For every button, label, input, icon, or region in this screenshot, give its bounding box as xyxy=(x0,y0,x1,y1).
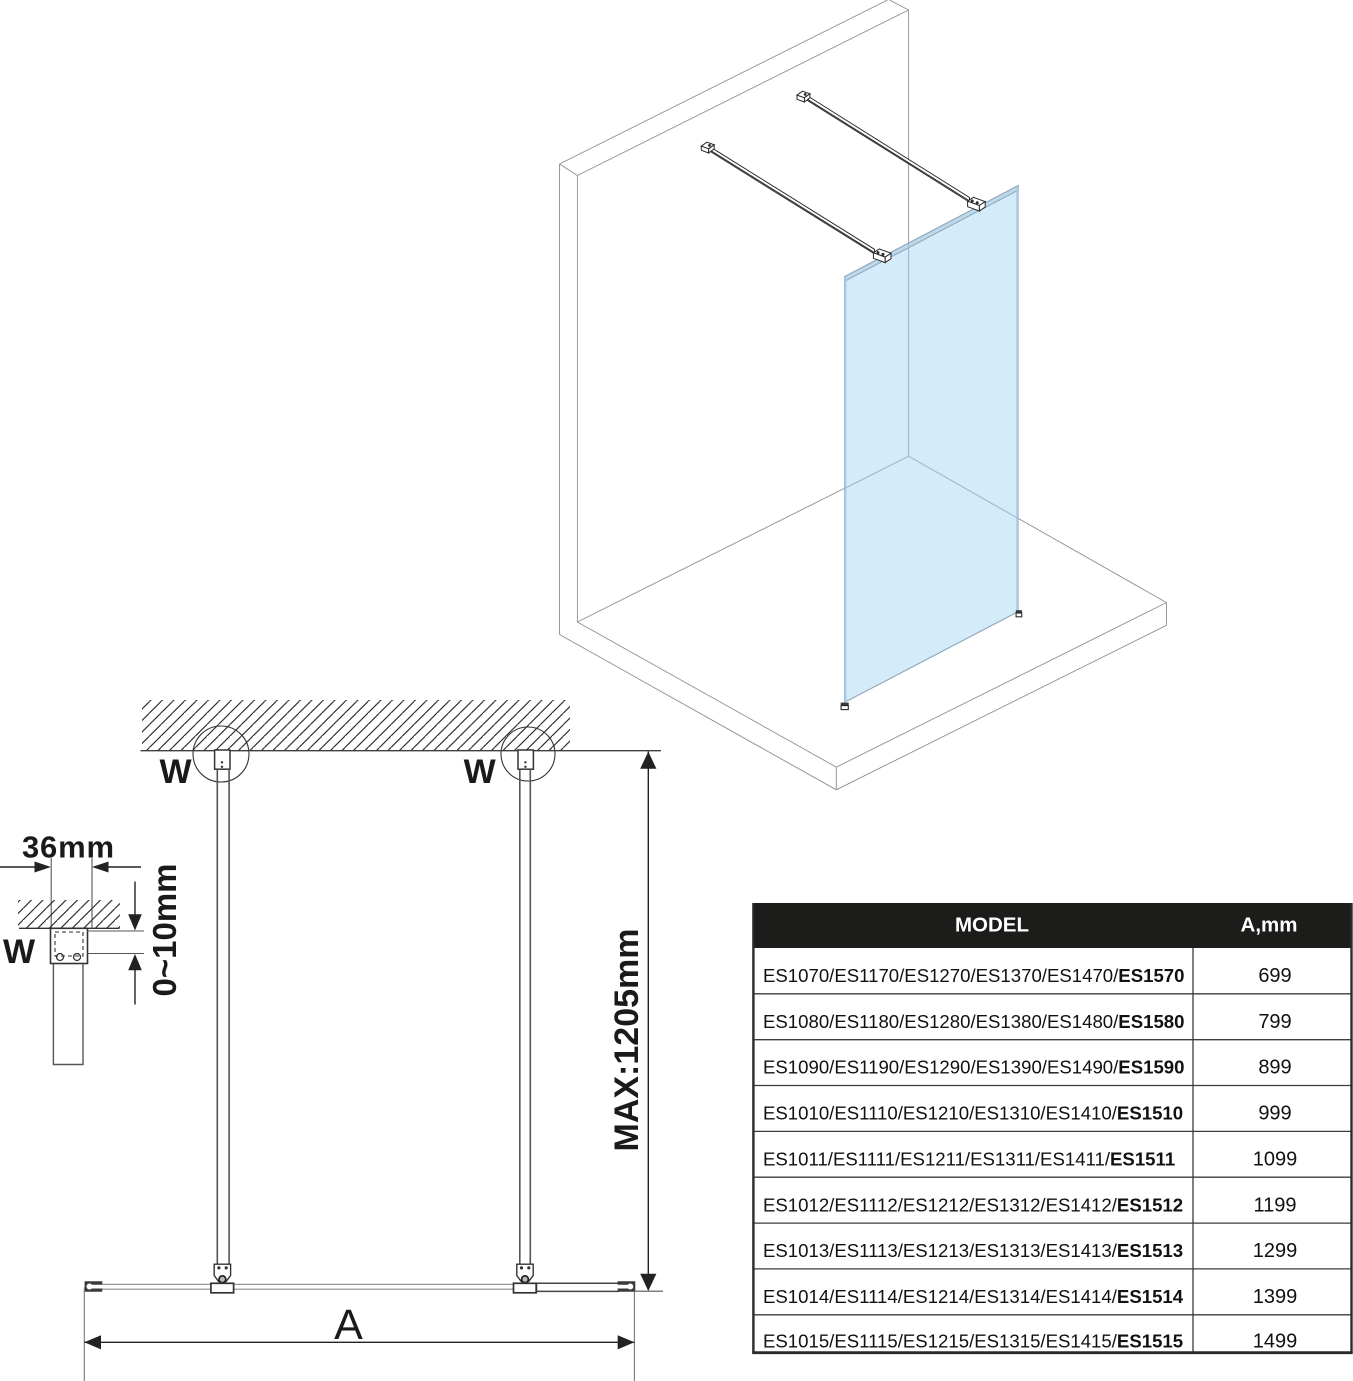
svg-text:ES1090/ES1190/ES1290/ES1390/ES: ES1090/ES1190/ES1290/ES1390/ES1490/ES159… xyxy=(763,1057,1184,1078)
svg-text:ES1070/ES1170/ES1270/ES1370/ES: ES1070/ES1170/ES1270/ES1370/ES1470/ES157… xyxy=(763,965,1184,986)
svg-text:699: 699 xyxy=(1258,965,1291,987)
svg-text:ES1080/ES1180/ES1280/ES1380/ES: ES1080/ES1180/ES1280/ES1380/ES1480/ES158… xyxy=(763,1011,1184,1032)
svg-text:36mm: 36mm xyxy=(22,830,115,865)
svg-text:W: W xyxy=(3,933,36,971)
svg-text:A: A xyxy=(334,1301,363,1349)
svg-text:ES1010/ES1110/ES1210/ES1310/ES: ES1010/ES1110/ES1210/ES1310/ES1410/ES151… xyxy=(763,1103,1183,1124)
svg-text:899: 899 xyxy=(1258,1057,1291,1079)
svg-text:ES1015/ES1115/ES1215/ES1315/ES: ES1015/ES1115/ES1215/ES1315/ES1415/ES151… xyxy=(763,1331,1183,1352)
svg-text:ES1011/ES1111/ES1211/ES1311/ES: ES1011/ES1111/ES1211/ES1311/ES1411/ES151… xyxy=(763,1148,1175,1169)
svg-text:W: W xyxy=(160,753,193,791)
svg-text:0~10mm: 0~10mm xyxy=(146,863,183,996)
svg-text:MODEL: MODEL xyxy=(955,914,1029,937)
svg-text:ES1012/ES1112/ES1212/ES1312/ES: ES1012/ES1112/ES1212/ES1312/ES1412/ES151… xyxy=(763,1194,1183,1215)
svg-text:MAX:1205mm: MAX:1205mm xyxy=(608,929,646,1152)
svg-text:ES1013/ES1113/ES1213/ES1313/ES: ES1013/ES1113/ES1213/ES1313/ES1413/ES151… xyxy=(763,1240,1183,1261)
svg-text:999: 999 xyxy=(1258,1103,1291,1125)
svg-text:1299: 1299 xyxy=(1253,1240,1298,1262)
svg-text:ES1014/ES1114/ES1214/ES1314/ES: ES1014/ES1114/ES1214/ES1314/ES1414/ES151… xyxy=(763,1286,1184,1307)
svg-text:A,mm: A,mm xyxy=(1241,914,1298,937)
svg-text:799: 799 xyxy=(1258,1011,1291,1033)
svg-text:W: W xyxy=(464,753,497,791)
svg-text:1099: 1099 xyxy=(1253,1148,1298,1170)
svg-text:1199: 1199 xyxy=(1253,1194,1296,1216)
svg-text:1499: 1499 xyxy=(1253,1331,1298,1353)
svg-text:1399: 1399 xyxy=(1253,1286,1298,1308)
